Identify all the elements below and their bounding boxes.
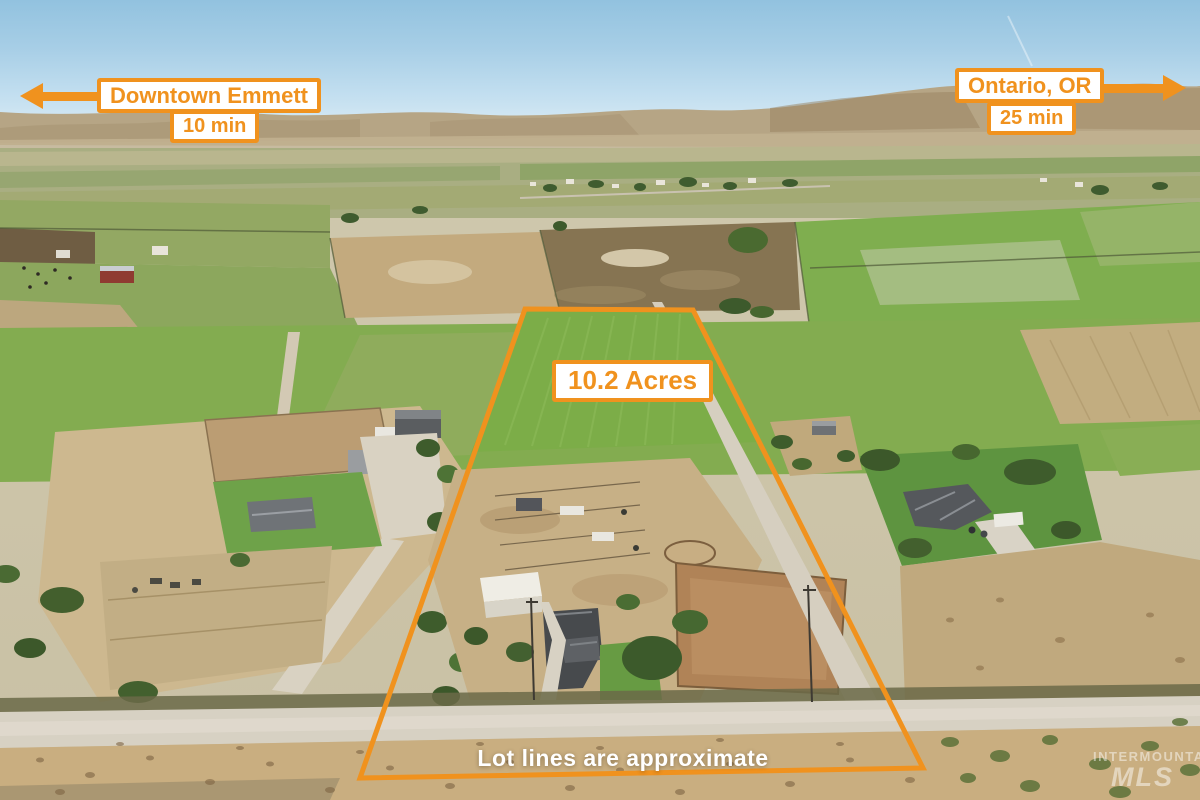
ontario-label: Ontario, OR — [955, 68, 1104, 103]
mls-watermark: INTERMOUNTAIN MLS — [1093, 750, 1200, 791]
acreage-label: 10.2 Acres — [552, 360, 713, 402]
lot-lines-disclaimer: Lot lines are approximate — [477, 745, 768, 772]
ontario-arrow-shaft — [1100, 84, 1164, 93]
downtown-arrow-shaft — [40, 92, 98, 101]
downtown-emmett-label: Downtown Emmett — [97, 78, 321, 113]
ontario-time-label: 25 min — [987, 102, 1076, 135]
listing-aerial-photo: Downtown Emmett 10 min Ontario, OR 25 mi… — [0, 0, 1200, 800]
mls-watermark-line2: MLS — [1093, 764, 1200, 791]
downtown-emmett-time-label: 10 min — [170, 110, 259, 143]
ontario-arrow-head-icon — [1163, 75, 1186, 101]
